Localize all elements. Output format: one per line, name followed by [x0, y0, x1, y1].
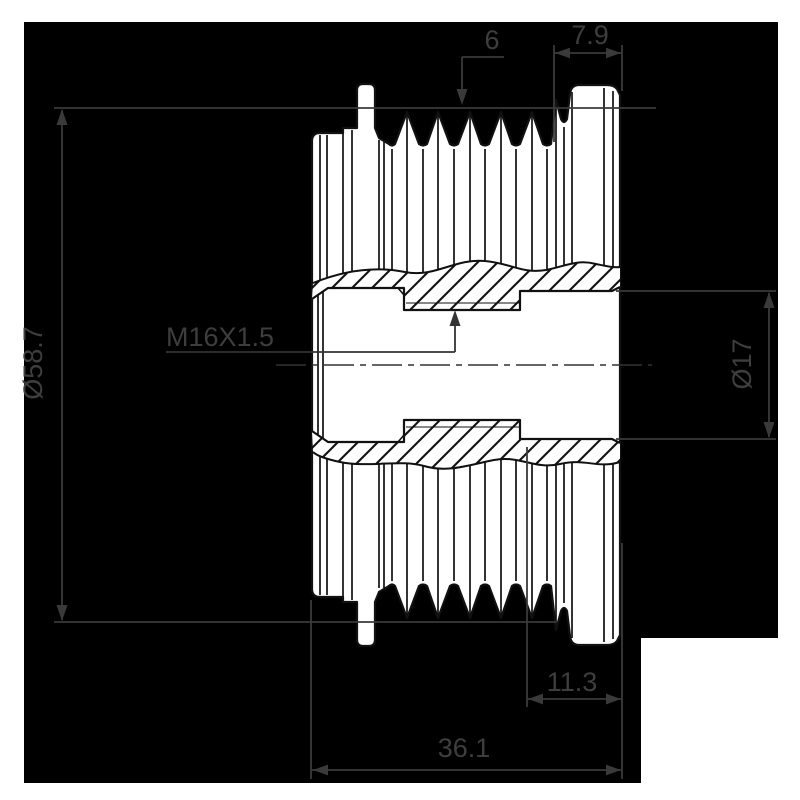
pulley-technical-drawing: 6 7.9 Ø58.7 M16X1.5 Ø17 11.3 36.1	[0, 0, 800, 800]
overall-width-label: 36.1	[438, 733, 491, 763]
outer-diameter-label: Ø58.7	[18, 326, 48, 400]
bore-diameter-label: Ø17	[727, 338, 757, 389]
bore-depth-label: 11.3	[547, 667, 598, 697]
groove-count-label: 6	[484, 25, 499, 55]
pulley-section-view	[276, 84, 652, 646]
canvas-lower-rect	[24, 638, 641, 783]
thread-spec-label: M16X1.5	[166, 322, 274, 352]
technical-drawing-page: 6 7.9 Ø58.7 M16X1.5 Ø17 11.3 36.1	[0, 0, 800, 800]
flange-width-label: 7.9	[571, 20, 609, 50]
